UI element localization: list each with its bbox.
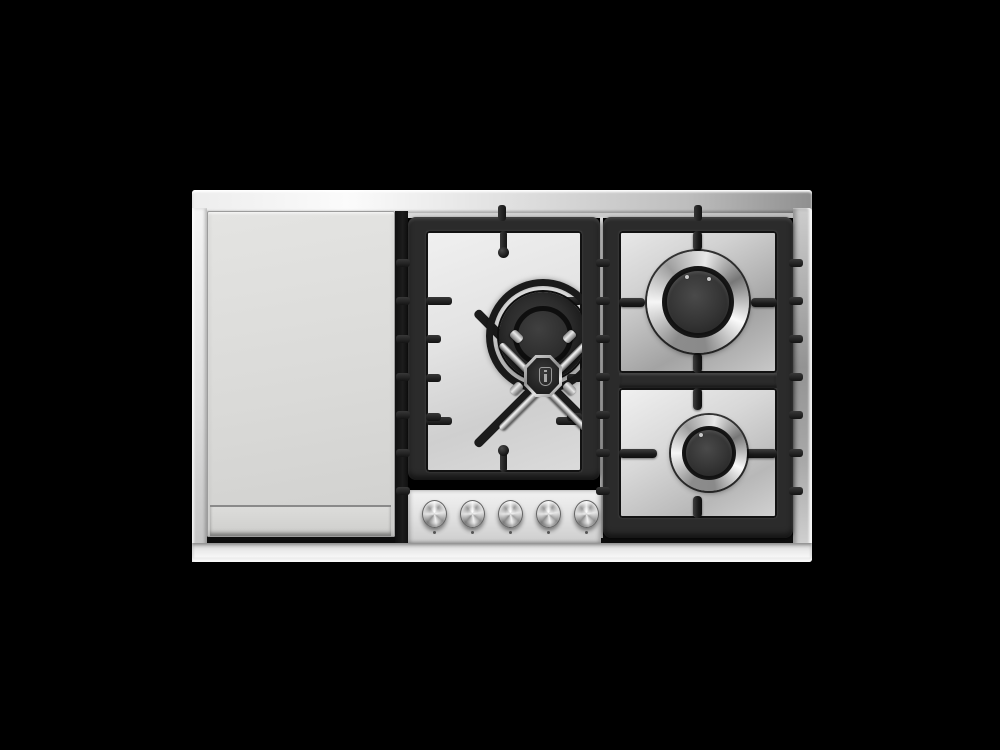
grate-nub <box>596 449 610 457</box>
grate-bar <box>619 449 657 458</box>
grate-pin-tip <box>498 445 509 456</box>
grate-nub <box>396 335 410 343</box>
grate-nub <box>396 411 410 419</box>
griddle-plate <box>207 211 395 537</box>
knob-index-mark <box>471 531 474 534</box>
grate-nub <box>789 259 803 267</box>
control-panel <box>408 490 601 543</box>
brand-emblem-icon <box>539 367 552 386</box>
grate-tab <box>426 413 441 421</box>
burner-large-head <box>667 271 729 333</box>
knob-index-mark <box>433 531 436 534</box>
burner-knob-5[interactable] <box>574 500 599 528</box>
grate-tab <box>426 374 441 382</box>
grate-middle-bar <box>619 373 777 388</box>
wok-burner-cap <box>524 355 562 397</box>
grate-nub <box>596 411 610 419</box>
grate-bar <box>693 231 702 251</box>
center-steel-window <box>426 231 582 472</box>
grate-nub <box>789 411 803 419</box>
grate-bar <box>619 298 645 307</box>
grate-nub <box>596 373 610 381</box>
igniter-electrode <box>685 275 689 279</box>
center-grate-frame <box>408 217 600 480</box>
burner-small-head <box>686 430 732 476</box>
burner-knob-3[interactable] <box>498 500 523 528</box>
gas-cooktop <box>192 190 812 562</box>
grate-nub <box>789 335 803 343</box>
grate-nub <box>596 487 610 495</box>
grate-nub <box>396 259 410 267</box>
grate-nub <box>789 297 803 305</box>
grate-bar <box>693 353 702 373</box>
grate-nub <box>396 449 410 457</box>
grate-foot <box>694 205 702 221</box>
knob-index-mark <box>509 531 512 534</box>
grate-nub <box>789 487 803 495</box>
wok-cap-face <box>527 358 559 394</box>
grate-nub <box>596 259 610 267</box>
igniter-electrode <box>699 433 703 437</box>
grate-nub <box>789 373 803 381</box>
grate-bar <box>693 496 702 518</box>
grate-foot <box>498 205 506 221</box>
right-bottom-steel-window <box>619 388 777 518</box>
grate-pin-tip <box>498 247 509 258</box>
grate-nub <box>596 335 610 343</box>
grate-nub <box>396 487 410 495</box>
burner-knob-1[interactable] <box>422 500 447 528</box>
knob-index-mark <box>547 531 550 534</box>
right-top-steel-window <box>619 231 777 373</box>
steel-frame-bottom <box>192 543 812 562</box>
grate-nub <box>789 449 803 457</box>
grate-bar <box>751 298 777 307</box>
burner-knob-2[interactable] <box>460 500 485 528</box>
burner-knob-4[interactable] <box>536 500 561 528</box>
photo-background: Top-down studio photograph of a stainles… <box>0 0 1000 750</box>
right-grate-frame <box>603 217 793 538</box>
steel-frame-left <box>192 208 207 562</box>
griddle-front-strip <box>210 505 391 536</box>
grate-tab <box>426 335 441 343</box>
grate-nub <box>596 297 610 305</box>
grate-nub <box>396 373 410 381</box>
grate-nub <box>396 297 410 305</box>
knob-index-mark <box>585 531 588 534</box>
grate-bar <box>693 388 702 410</box>
trivet-elbow <box>426 297 452 305</box>
thermocouple <box>707 277 711 281</box>
